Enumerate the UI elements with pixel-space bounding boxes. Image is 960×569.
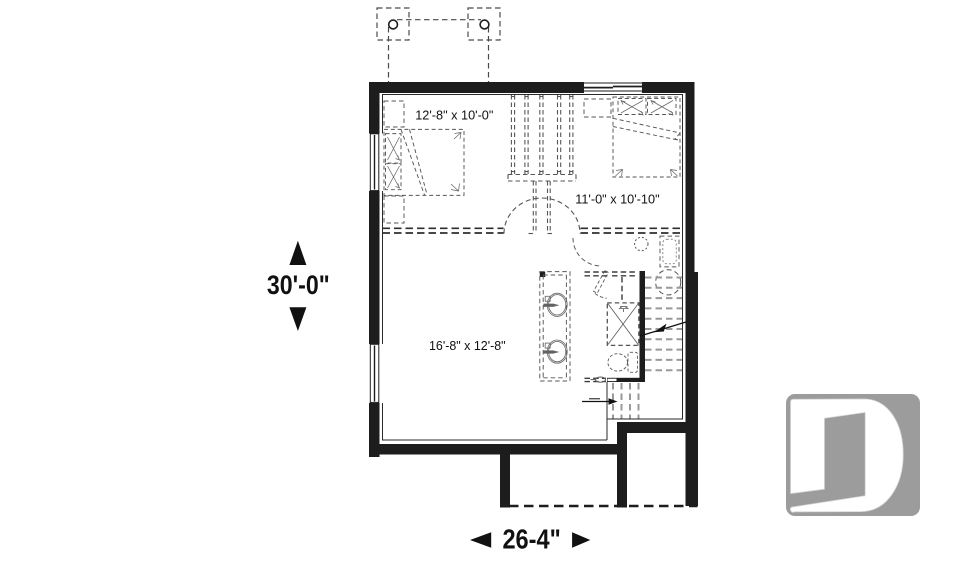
svg-text:26-4": 26-4": [502, 523, 560, 554]
svg-text:30'-0": 30'-0": [267, 270, 330, 300]
svg-text:12'-8" x 10'-0": 12'-8" x 10'-0": [415, 107, 494, 122]
svg-text:11'-0" x 10'-10": 11'-0" x 10'-10": [575, 191, 660, 206]
svg-text:16'-8" x 12'-8": 16'-8" x 12'-8": [429, 338, 506, 353]
